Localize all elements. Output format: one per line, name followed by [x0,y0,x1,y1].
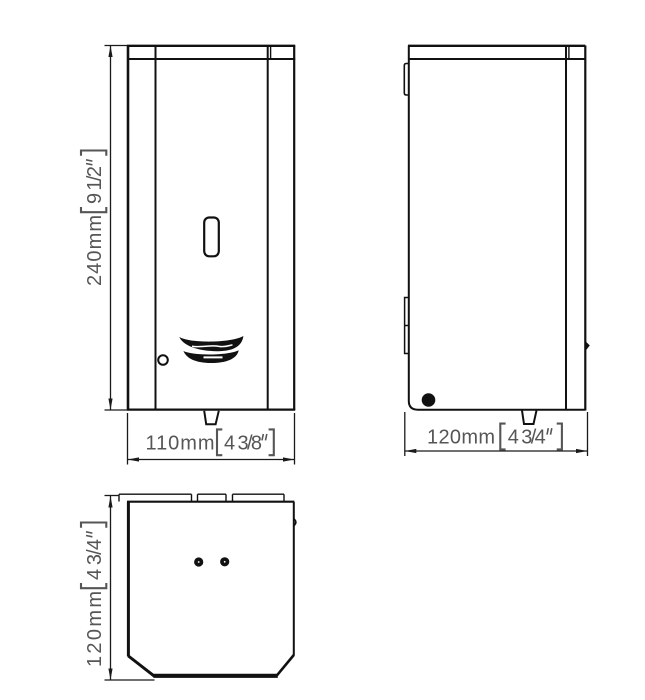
svg-text:4 3/8: 4 3/8 [224,433,262,455]
svg-text:120mm: 120mm [427,427,495,449]
svg-text:4 3/4: 4 3/4 [508,427,546,449]
svg-text:9 1/2: 9 1/2 [84,166,106,204]
svg-text:4 3/4: 4 3/4 [84,539,106,580]
svg-text:110mm: 110mm [146,433,215,455]
svg-text:240mm: 240mm [84,215,106,286]
